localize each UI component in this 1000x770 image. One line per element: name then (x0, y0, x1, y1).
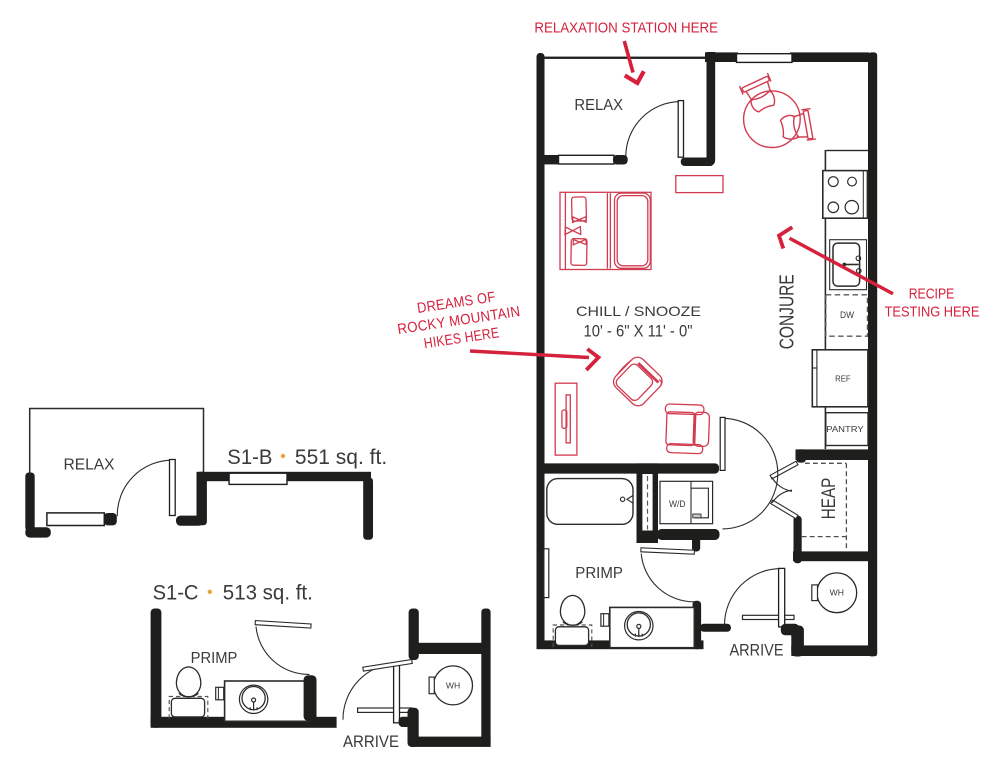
svg-text:DW: DW (840, 310, 854, 320)
svg-text:S1-C: S1-C (153, 582, 199, 605)
svg-text:CHILL / SNOOZE: CHILL / SNOOZE (576, 303, 701, 319)
svg-text:WH: WH (446, 681, 460, 691)
svg-text:RECIPE: RECIPE (909, 287, 955, 303)
svg-text:TESTING HERE: TESTING HERE (885, 305, 980, 321)
svg-text:ARRIVE: ARRIVE (730, 642, 784, 660)
svg-text:W/D: W/D (669, 499, 686, 509)
svg-text:RELAX: RELAX (574, 97, 623, 114)
svg-text:PRIMP: PRIMP (191, 650, 238, 667)
svg-text:PRIMP: PRIMP (575, 565, 623, 582)
svg-text:ARRIVE: ARRIVE (343, 733, 399, 751)
svg-text:CONJURE: CONJURE (777, 274, 799, 349)
svg-text:RELAX: RELAX (64, 456, 116, 473)
svg-text:PANTRY: PANTRY (826, 424, 864, 434)
svg-text:10' - 6" X 11' - 0": 10' - 6" X 11' - 0" (584, 323, 693, 341)
svg-text:REF: REF (835, 374, 851, 384)
svg-text:WH: WH (830, 588, 844, 598)
svg-text:RELAXATION STATION HERE: RELAXATION STATION HERE (534, 19, 718, 36)
svg-text:HEAP: HEAP (819, 478, 840, 520)
svg-text:S1-B: S1-B (227, 446, 272, 469)
svg-text:513 sq. ft.: 513 sq. ft. (223, 582, 313, 605)
svg-text:551 sq. ft.: 551 sq. ft. (295, 446, 387, 469)
